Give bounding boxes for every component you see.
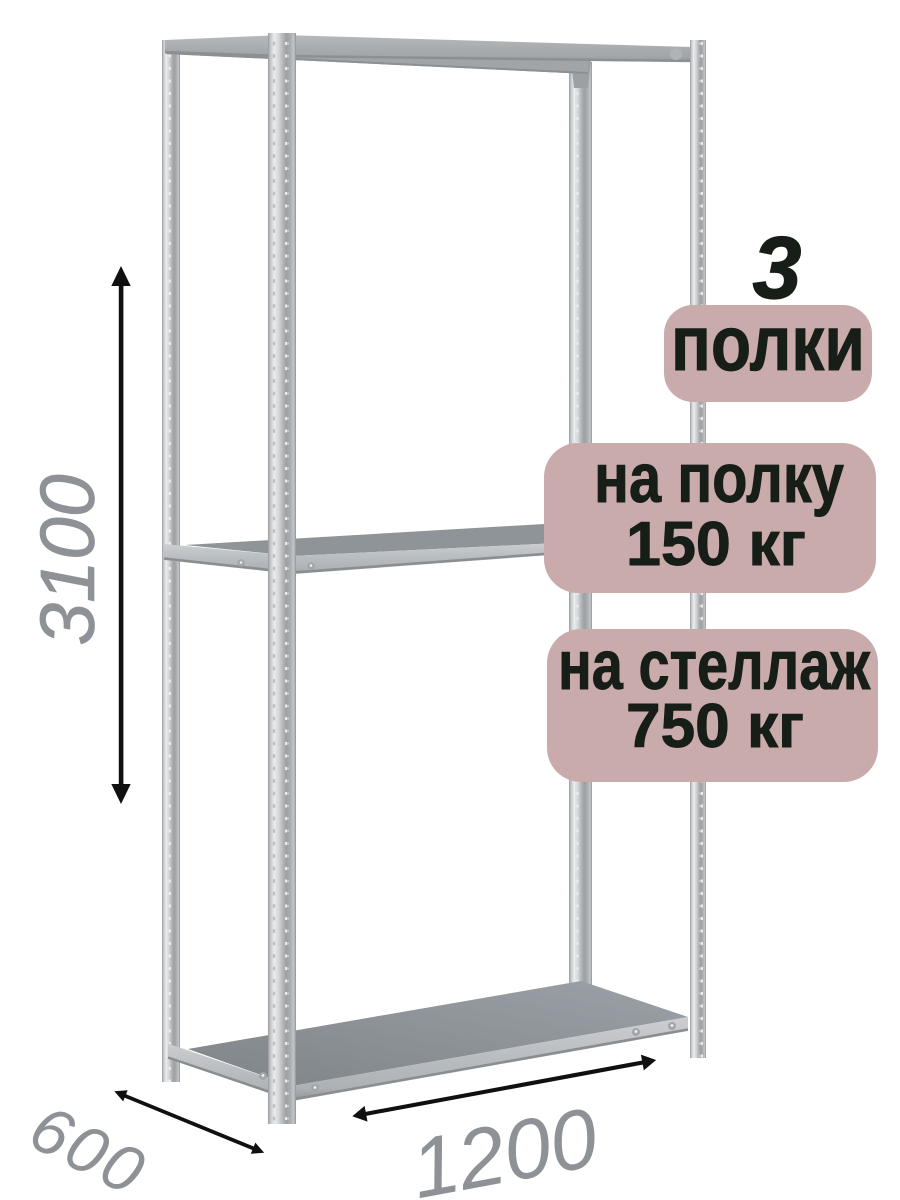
svg-text:на полку: на полку [594, 439, 844, 517]
svg-text:150 кг: 150 кг [626, 510, 806, 579]
svg-text:3100: 3100 [25, 474, 111, 645]
svg-text:полки: полки [671, 299, 865, 387]
svg-text:600: 600 [19, 1090, 159, 1200]
svg-text:1200: 1200 [404, 1090, 605, 1200]
svg-text:750 кг: 750 кг [626, 692, 804, 761]
